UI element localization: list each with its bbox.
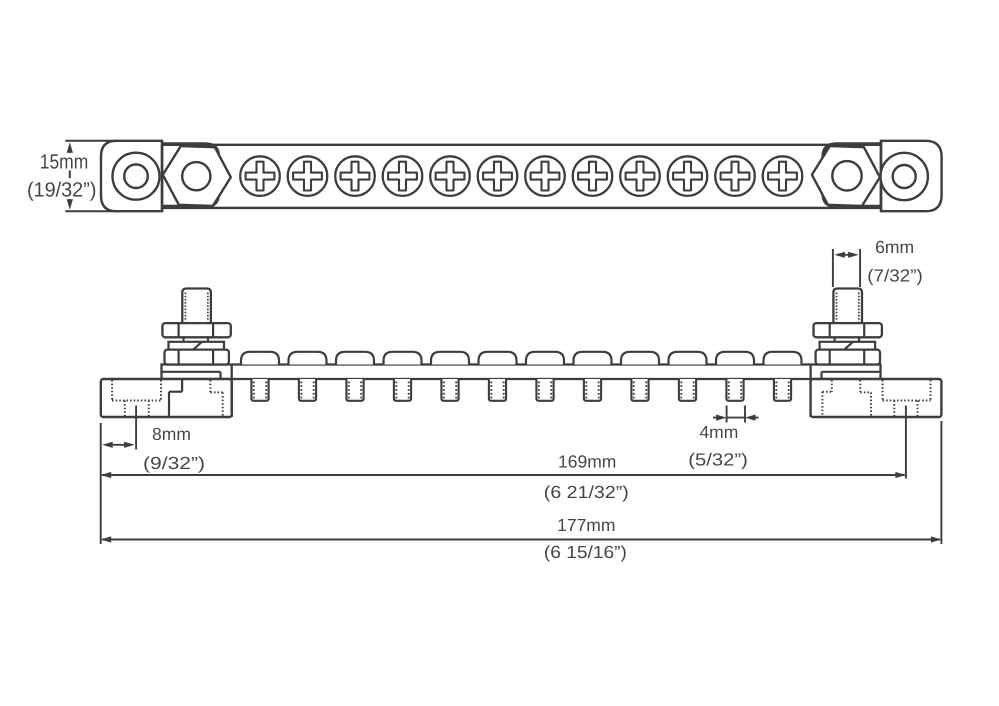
svg-text:(5/32”): (5/32”): [688, 450, 748, 470]
svg-text:6mm: 6mm: [875, 237, 914, 257]
svg-text:15mm: 15mm: [40, 151, 89, 174]
svg-text:(6 15/16”): (6 15/16”): [544, 542, 627, 562]
svg-text:(19/32”): (19/32”): [27, 179, 97, 202]
svg-text:177mm: 177mm: [557, 515, 615, 535]
svg-text:(6 21/32”): (6 21/32”): [544, 482, 629, 502]
svg-text:(7/32”): (7/32”): [867, 266, 923, 286]
svg-text:8mm: 8mm: [152, 424, 191, 444]
svg-text:(9/32”): (9/32”): [143, 453, 205, 473]
svg-text:169mm: 169mm: [558, 452, 616, 472]
svg-text:4mm: 4mm: [699, 422, 738, 442]
